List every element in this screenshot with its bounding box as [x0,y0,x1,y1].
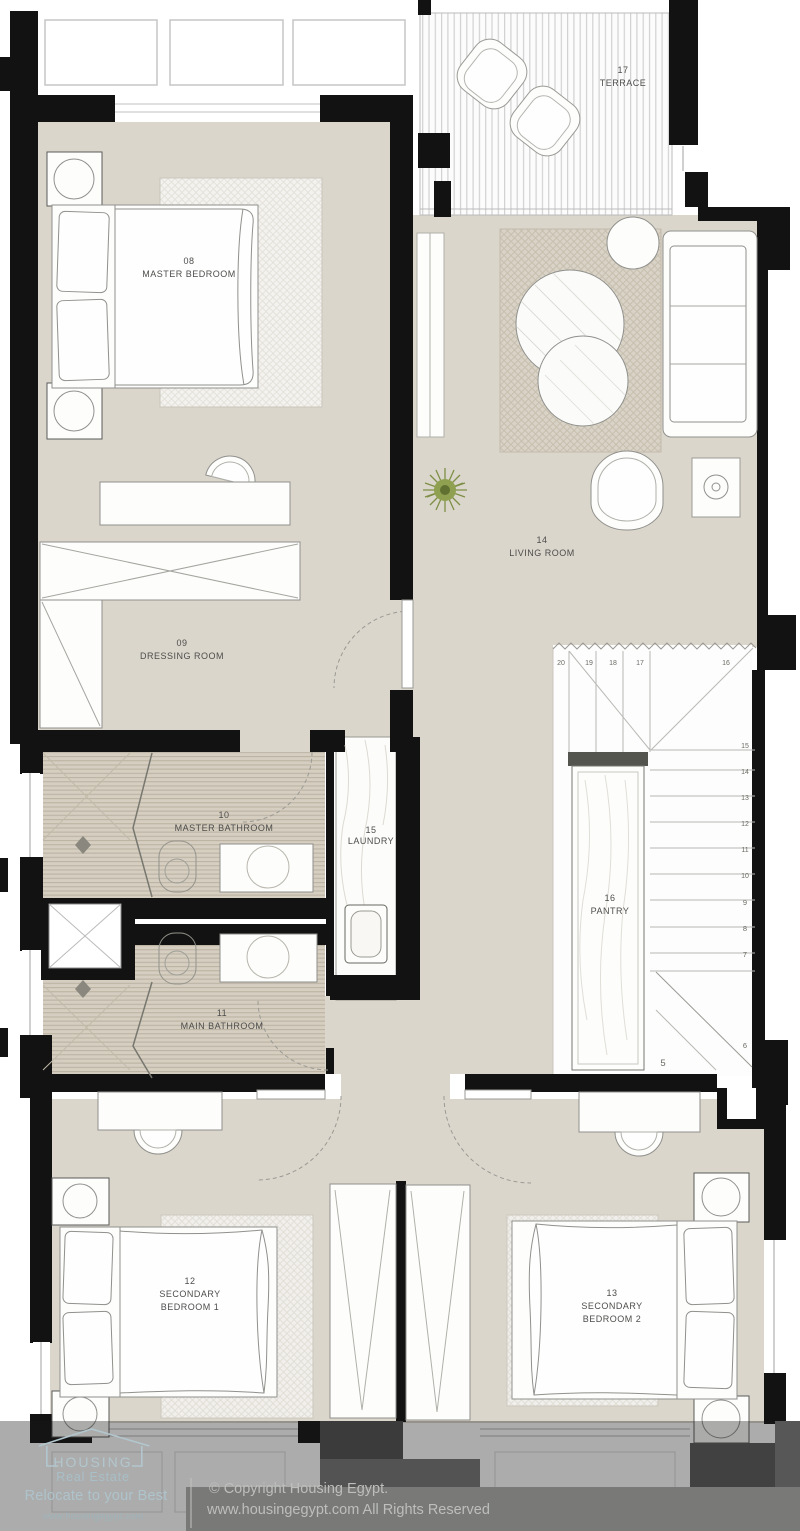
svg-text:11: 11 [217,1008,227,1018]
svg-text:10: 10 [741,873,749,880]
svg-text:08: 08 [183,256,194,266]
svg-text:MASTER BEDROOM: MASTER BEDROOM [142,269,236,279]
svg-text:DRESSING ROOM: DRESSING ROOM [140,651,224,661]
svg-text:MAIN BATHROOM: MAIN BATHROOM [181,1021,264,1031]
svg-text:HOUSING: HOUSING [53,1454,132,1470]
svg-text:14: 14 [536,535,547,545]
svg-text:15: 15 [741,743,749,750]
svg-text:7: 7 [743,950,747,959]
svg-text:15: 15 [365,825,376,835]
svg-text:16: 16 [604,893,615,903]
svg-text:SECONDARY: SECONDARY [159,1289,220,1299]
svg-text:SECONDARY: SECONDARY [581,1301,642,1311]
svg-text:14: 14 [741,769,749,776]
svg-text:19: 19 [585,660,593,667]
svg-text:PANTRY: PANTRY [591,906,630,916]
svg-text:8: 8 [743,924,747,933]
svg-text:6: 6 [743,1041,747,1050]
svg-text:TERRACE: TERRACE [600,78,647,88]
svg-text:12: 12 [184,1276,195,1286]
svg-text:MASTER BATHROOM: MASTER BATHROOM [175,823,274,833]
svg-text:16: 16 [722,660,730,667]
svg-text:www.housingegypt.com All Right: www.housingegypt.com All Rights Reserved [206,1502,490,1518]
svg-text:10: 10 [218,810,229,820]
svg-text:BEDROOM 2: BEDROOM 2 [583,1314,642,1324]
svg-text:9: 9 [743,898,747,907]
svg-text:5: 5 [660,1058,665,1069]
svg-text:www.housingegypt.com: www.housingegypt.com [42,1511,144,1521]
svg-text:11: 11 [741,847,748,854]
svg-text:13: 13 [741,795,749,802]
svg-text:12: 12 [741,821,749,828]
svg-text:13: 13 [606,1288,617,1298]
svg-text:BEDROOM 1: BEDROOM 1 [161,1302,220,1312]
svg-text:20: 20 [557,660,565,667]
svg-text:Relocate to your Best: Relocate to your Best [25,1488,168,1504]
svg-text:LAUNDRY: LAUNDRY [348,836,394,846]
svg-text:18: 18 [609,660,617,667]
svg-text:17: 17 [617,65,628,75]
svg-text:LIVING ROOM: LIVING ROOM [509,548,575,558]
svg-text:Real Estate: Real Estate [56,1470,129,1484]
svg-text:09: 09 [176,638,187,648]
svg-text:17: 17 [636,660,644,667]
svg-text:© Copyright Housing Egypt.: © Copyright Housing Egypt. [209,1481,388,1497]
